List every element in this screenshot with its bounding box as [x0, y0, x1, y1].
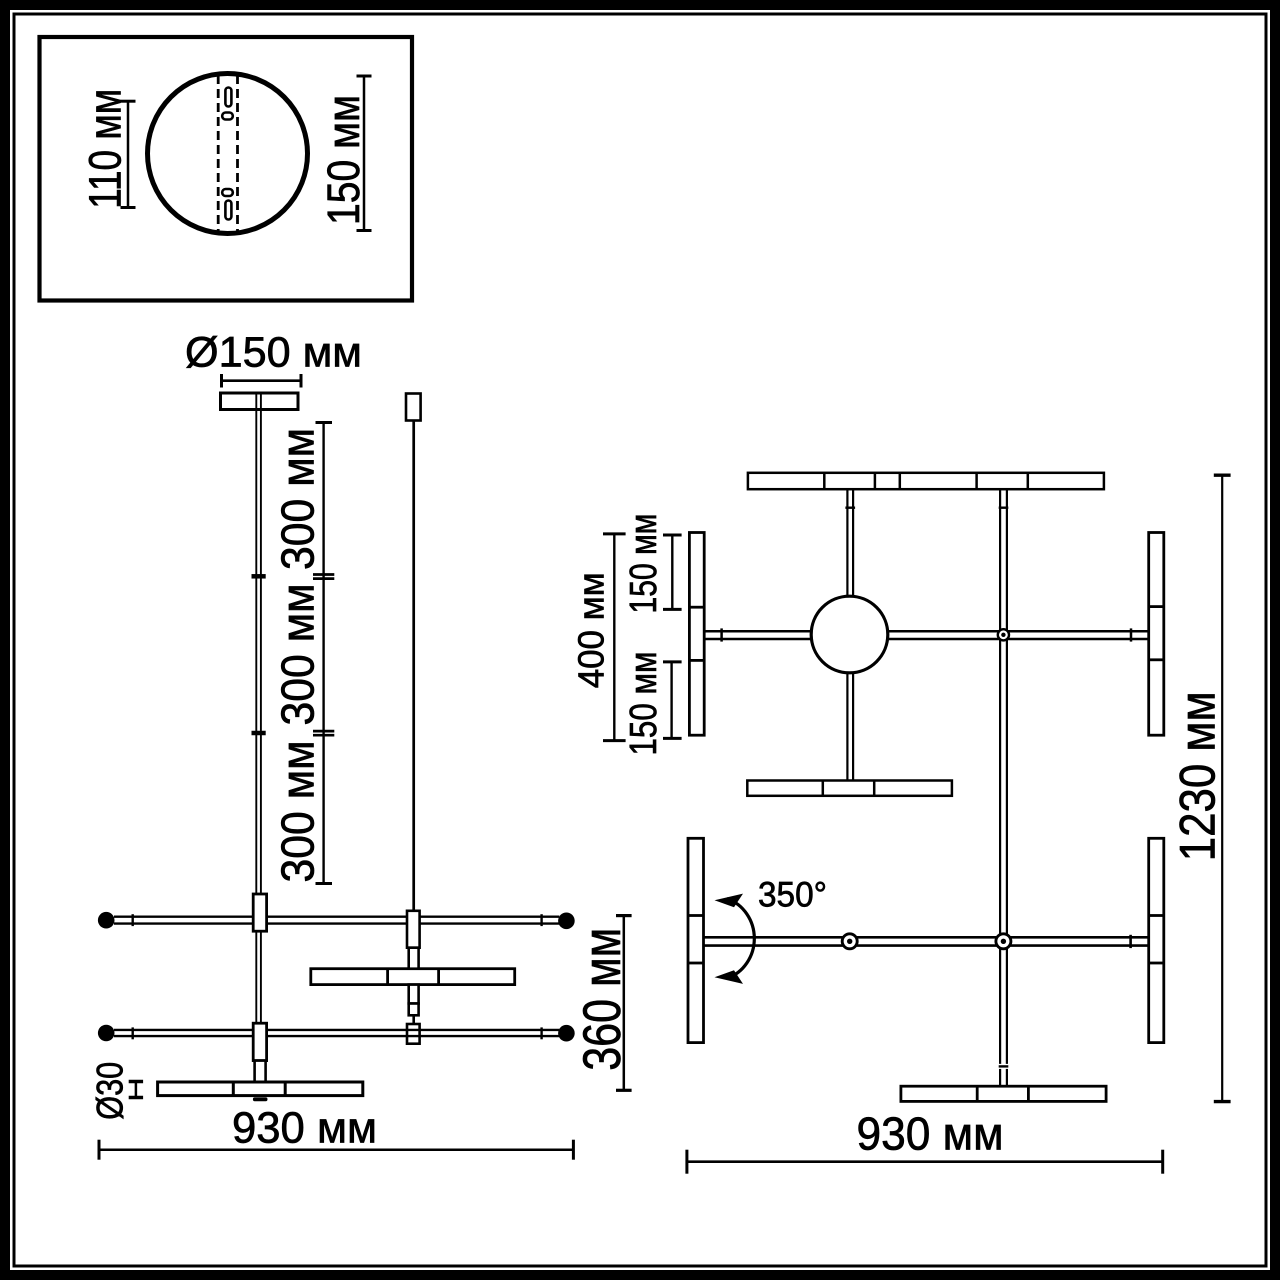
svg-text:Ø150 мм: Ø150 мм	[185, 329, 362, 377]
svg-text:150 мм: 150 мм	[318, 95, 369, 225]
svg-text:300 мм: 300 мм	[272, 741, 324, 883]
svg-text:150 мм: 150 мм	[623, 652, 665, 756]
svg-text:Ø30: Ø30	[90, 1062, 131, 1120]
svg-text:350°: 350°	[758, 875, 827, 914]
svg-text:400 мм: 400 мм	[571, 572, 612, 688]
svg-text:300 мм: 300 мм	[272, 428, 324, 570]
svg-text:1230 мм: 1230 мм	[1169, 691, 1225, 861]
svg-text:360 мм: 360 мм	[573, 928, 632, 1071]
svg-text:300 мм: 300 мм	[272, 584, 324, 726]
svg-text:930 мм: 930 мм	[232, 1104, 377, 1153]
svg-text:150 мм: 150 мм	[623, 514, 665, 614]
svg-text:930 мм: 930 мм	[857, 1107, 1004, 1159]
svg-text:110 мм: 110 мм	[80, 89, 131, 209]
